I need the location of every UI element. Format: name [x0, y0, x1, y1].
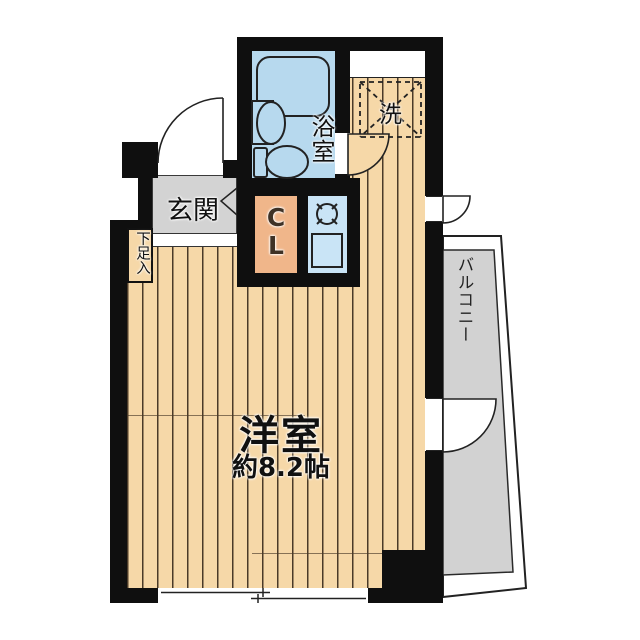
floor-plan: 洋室 約8.2帖 玄関 C L 洗 浴室 下足入 バルコニー [0, 0, 640, 640]
shoe-cabinet-label: 下足入 [132, 231, 153, 275]
entrance-label: 玄関 [152, 190, 234, 227]
entrance-door-icon [158, 98, 223, 163]
washer-label: 洗 [360, 95, 421, 129]
side-door-icon [443, 196, 470, 223]
bathroom-door-icon [348, 134, 389, 175]
closet-label: C L [255, 204, 297, 260]
washbasin-icon [252, 101, 285, 144]
balcony-label: バルコニー [452, 256, 476, 344]
kitchen-sink-icon [312, 234, 342, 267]
sliding-window-icon [161, 588, 366, 603]
bathroom-label: 浴室 [304, 114, 339, 164]
symbols-layer [0, 0, 640, 640]
balcony-door-icon [443, 399, 496, 452]
main-room-area-label: 約8.2帖 [196, 447, 366, 484]
toilet-icon [254, 146, 308, 178]
stove-burner-icon [317, 204, 337, 224]
